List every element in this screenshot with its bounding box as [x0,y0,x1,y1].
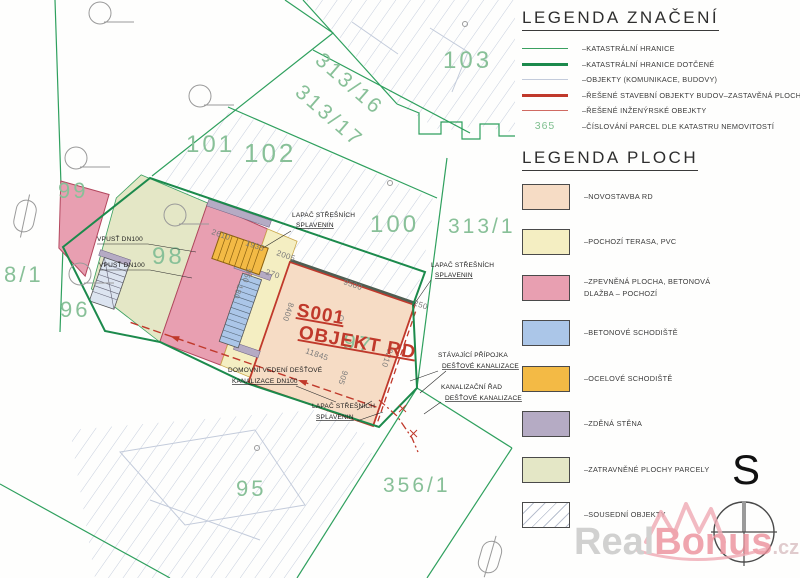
legend-area-label: –ZPEVNĚNÁ PLOCHA, BETONOVÁDLAŽBA – POCHO… [584,276,710,299]
area-swatch [522,411,570,437]
line-swatch [522,48,568,49]
compass-north-label: S [706,448,786,492]
map-annotation: VPUSŤ DN100 [99,260,145,269]
map-annotation: SPLAVENIN [296,222,334,229]
legend-symbol-label: –KATASTRÁLNÍ HRANICE DOTČENÉ [582,60,714,69]
legend-symbol-label: –ČÍSLOVÁNÍ PARCEL DLE KATASTRU NEMOVITOS… [582,122,774,131]
line-swatch [522,110,568,111]
dimension-label: 250 [412,298,429,311]
legend-area-label: –NOVOSTAVBA RD [584,191,653,203]
legend-area-label: –ZDĚNÁ STĚNA [584,418,642,430]
annotation-leader-line [410,371,438,381]
area-swatch [522,502,570,528]
legend-area-item-1: –POCHOZÍ TERASA, PVC [522,229,798,256]
annotation-leader-line [424,402,441,414]
parcel-number: 99 [58,178,88,203]
map-annotation: STÁVAJÍCÍ PŘÍPOJKA [438,350,508,359]
legend-symbol-item-1: –KATASTRÁLNÍ HRANICE DOTČENÉ [518,57,798,73]
map-annotation: VPUSŤ DN100 [97,234,143,243]
legend-area-item-2: –ZPEVNĚNÁ PLOCHA, BETONOVÁDLAŽBA – POCHO… [522,274,798,301]
map-annotation: LAPAČ STŘEŠNÍCH [312,401,375,410]
line-swatch-bar [522,63,568,66]
area-swatch [522,275,570,301]
map-annotation: DOMOVNÍ VEDENÍ DEŠŤOVÉ [228,365,323,374]
oval-symbol [11,192,40,239]
area-swatch [522,320,570,346]
legend-symbol-label: –ŘEŠENÉ INŽENÝRSKÉ OBEJKTY [582,106,707,115]
legend-symbol-label: –OBJEKTY (KOMUNIKACE, BUDOVY) [582,75,717,84]
parcel-number: 100 [370,211,419,238]
legend-area-item-0: –NOVOSTAVBA RD [522,183,798,210]
line-swatch-bar [522,79,568,80]
line-swatch-bar [522,94,568,97]
parcel-number: 313/1 [448,215,516,238]
legend-area-label: –OCELOVÉ SCHODIŠTĚ [584,373,672,385]
legend-symbol-item-0: –KATASTRÁLNÍ HRANICE [518,41,798,57]
area-swatch [522,457,570,483]
area-swatch [522,184,570,210]
parcel-number: 95 [236,476,266,501]
line-swatch-bar [522,48,568,49]
map-annotation: LAPAČ STŘEŠNÍCH [431,260,494,269]
legend-area-item-4: –OCELOVÉ SCHODIŠTĚ [522,365,798,392]
line-swatch-bar [522,110,568,111]
legend-symbol-item-2: –OBJEKTY (KOMUNIKACE, BUDOVY) [518,72,798,88]
map-annotation: KANALIZAČNÍ ŘAD [441,382,502,391]
legend-areas-title: LEGENDA PLOCH [522,148,698,171]
legend-area-item-3: –BETONOVÉ SCHODIŠTĚ [522,320,798,347]
compass-rose [706,494,786,570]
circle-tail-symbol [65,147,110,169]
map-annotation: SPLAVENIN [435,272,473,279]
parcel-number: 101 [186,131,235,158]
legend-area-label: –POCHOZÍ TERASA, PVC [584,236,676,248]
legend-area-label: –SOUSEDNÍ OBJEKTY [584,509,666,521]
map-annotation: KANALIZACE DN100 [232,378,298,385]
legend-symbol-item-3: –ŘEŠENÉ STAVEBNÍ OBJEKTY BUDOV–ZASTAVĚNÁ… [518,88,798,104]
line-swatch [522,79,568,80]
legend-symbol-label: –KATASTRÁLNÍ HRANICE [582,44,675,53]
parcel-number: 98 [152,243,185,270]
line-swatch [522,63,568,66]
parcel-number: 96 [60,297,90,322]
site-plan-page: 1021011039998968/1100313/19795356/1313/1… [0,0,800,578]
legend-symbol-item-4: –ŘEŠENÉ INŽENÝRSKÉ OBEJKTY [518,103,798,119]
parcel-number: 103 [443,47,492,74]
legend-area-label: –BETONOVÉ SCHODIŠTĚ [584,327,678,339]
parcel-number-sample: 365 [522,120,568,132]
legend-area-item-5: –ZDĚNÁ STĚNA [522,411,798,438]
parcel-number: 8/1 [4,262,44,287]
legend-symbol-label: –ŘEŠENÉ STAVEBNÍ OBJEKTY BUDOV–ZASTAVĚNÁ… [582,91,800,100]
compass: S [706,448,786,570]
line-swatch [522,94,568,97]
parcel-number: 356/1 [383,474,451,497]
oval-symbol [475,533,506,578]
area-swatch [522,229,570,255]
circle-tail-symbol [189,85,234,107]
map-annotation: SPLAVENIN [316,414,354,421]
legend-symbols-list: –KATASTRÁLNÍ HRANICE–KATASTRÁLNÍ HRANICE… [518,41,798,134]
map-annotation: DEŠŤOVÉ KANALIZACE [442,361,519,370]
map-annotation: LAPAČ STŘEŠNÍCH [292,210,355,219]
parcel-number: 102 [244,138,296,168]
parcel-number-sample-value: 365 [535,120,556,132]
legend-symbols-title: LEGENDA ZNAČENÍ [522,8,719,31]
circle-tail-symbol [89,2,134,24]
legend-area-label: –ZATRAVNĚNÉ PLOCHY PARCELY [584,464,709,476]
map-annotation: DEŠŤOVÉ KANALIZACE [445,393,522,402]
area-swatch [522,366,570,392]
legend-symbol-item-5: 365–ČÍSLOVÁNÍ PARCEL DLE KATASTRU NEMOVI… [518,119,798,135]
